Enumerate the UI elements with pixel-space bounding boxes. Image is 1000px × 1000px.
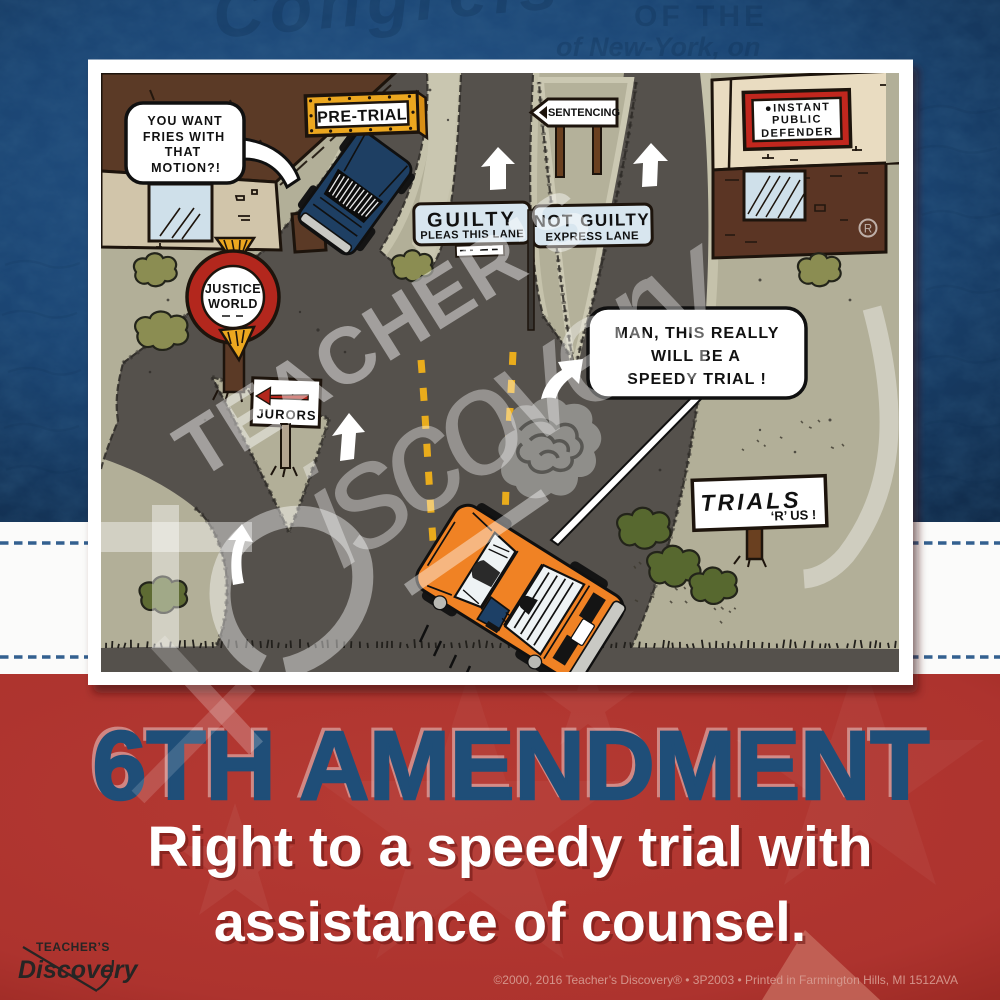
svg-text:THAT: THAT — [165, 145, 201, 159]
svg-text:Right to a speedy trial with: Right to a speedy trial with — [147, 815, 872, 879]
svg-text:assistance of counsel.: assistance of counsel. — [214, 891, 806, 953]
svg-text:OF THE: OF THE — [634, 0, 768, 33]
svg-text:FRIES WITH: FRIES WITH — [143, 130, 225, 144]
svg-text:DEFENDER: DEFENDER — [761, 126, 834, 140]
svg-text:MOTION?!: MOTION?! — [151, 161, 221, 175]
svg-text:PRE-TRIAL: PRE-TRIAL — [317, 106, 407, 126]
svg-text:SENTENCING: SENTENCING — [548, 107, 620, 119]
svg-text:PUBLIC: PUBLIC — [772, 113, 822, 126]
svg-text:‘R’ US !: ‘R’ US ! — [770, 507, 816, 524]
svg-text:WORLD: WORLD — [208, 297, 258, 311]
svg-text:of New-York, on: of New-York, on — [556, 32, 761, 62]
svg-text:YOU WANT: YOU WANT — [147, 114, 222, 128]
svg-text:JUSTICE: JUSTICE — [205, 282, 261, 296]
svg-text:TEACHER’S: TEACHER’S — [36, 940, 110, 954]
svg-text:©2000, 2016 Teacher’s Discover: ©2000, 2016 Teacher’s Discovery® • 3P200… — [493, 973, 958, 987]
svg-text:R: R — [864, 224, 872, 236]
